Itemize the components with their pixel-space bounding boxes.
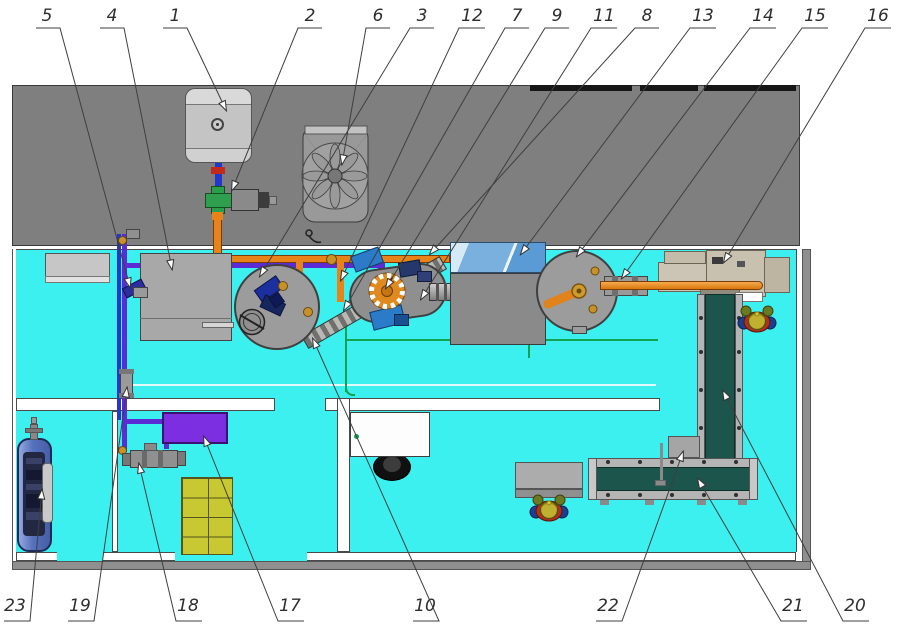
compressor-cap [122, 453, 131, 466]
callout-number-21: 21 [778, 596, 808, 616]
callout-number-17: 17 [275, 596, 305, 616]
press-machine-block [664, 251, 706, 264]
callout-number-23: 23 [0, 596, 30, 616]
compressor-band [158, 450, 163, 468]
vessel-slot [26, 494, 42, 508]
drum-black [373, 453, 411, 481]
callout-number-11: 11 [589, 6, 619, 26]
extruder-gearbox [417, 271, 432, 282]
horizontal-conveyor-cap [749, 458, 758, 500]
horizontal-conveyor-rail [588, 490, 758, 500]
upper-wall-strip [704, 85, 796, 91]
pump-orange-elbow [212, 212, 223, 220]
doorway [57, 552, 103, 561]
hopper-body [450, 273, 546, 345]
vessel-slot [26, 458, 42, 464]
conveyor-foot [600, 500, 609, 505]
valve-actuator [133, 287, 148, 298]
work-table-front [45, 276, 110, 283]
orange-pipe-branch [337, 258, 344, 302]
vessel-slot [26, 484, 42, 490]
vertical-conveyor-rail [735, 294, 743, 464]
extruder-nozzle-band [436, 283, 439, 301]
press-machine-block [764, 257, 790, 293]
conveyor-drive-foot [655, 480, 666, 486]
extruder-pump-motor [394, 314, 409, 326]
callout-number-22: 22 [593, 596, 623, 616]
hopper-top [450, 242, 546, 273]
conveyor-drive-box [668, 436, 700, 458]
right-wall-outer [802, 249, 811, 569]
conveyor-drive-rod [660, 443, 663, 482]
bottom-wall [16, 552, 796, 561]
callout-number-7: 7 [502, 6, 532, 26]
callout-number-4: 4 [97, 6, 127, 26]
pump-motor [231, 189, 259, 211]
pump-valve-body [205, 193, 232, 208]
floor-marking-line [130, 384, 656, 386]
callout-number-20: 20 [840, 596, 870, 616]
compressor-body [130, 450, 178, 468]
pump-motor-tail [269, 196, 277, 205]
callout-number-18: 18 [173, 596, 203, 616]
corridor-wall [16, 398, 275, 411]
storage-tank-seam [186, 104, 251, 105]
compressor-top [144, 443, 157, 451]
orange-discharge-pipe [600, 281, 763, 290]
partition-wall-vertical [337, 398, 350, 552]
pipe-flange [326, 254, 337, 265]
callout-number-12: 12 [457, 6, 487, 26]
conveyor-foot [697, 500, 706, 505]
vessel-valve-cross [25, 428, 43, 433]
vessel-panel [42, 463, 53, 523]
callout-number-14: 14 [748, 6, 778, 26]
tank-port-dot [216, 123, 219, 126]
callout-number-3: 3 [407, 6, 437, 26]
callout-number-2: 2 [295, 6, 325, 26]
partition-wall-vertical [112, 411, 118, 552]
callout-number-10: 10 [410, 596, 440, 616]
electrical-box [162, 412, 228, 444]
control-cabinet-divider [140, 318, 232, 319]
callout-number-15: 15 [800, 6, 830, 26]
compressor-block [177, 451, 186, 466]
horizontal-conveyor-belt [596, 467, 750, 491]
callout-number-5: 5 [32, 6, 62, 26]
inline-filter-cap [119, 369, 134, 374]
callout-number-1: 1 [160, 6, 190, 26]
mixing-drum [234, 264, 320, 350]
conveyor-foot [738, 500, 747, 505]
pipe-valve-top [126, 229, 140, 239]
press-machine-detail [712, 257, 723, 264]
callout-number-16: 16 [863, 6, 893, 26]
pump-red-fitting [211, 167, 225, 174]
callout-number-13: 13 [688, 6, 718, 26]
inline-filter-cap [119, 393, 134, 398]
control-cabinet-slot [202, 322, 234, 328]
extruder-nozzle-band [444, 283, 447, 301]
callout-number-19: 19 [65, 596, 95, 616]
upper-wall-strip [530, 85, 632, 91]
pallet-stack [181, 477, 233, 555]
vertical-conveyor-belt [705, 294, 735, 464]
bottom-outer-wall [12, 561, 811, 570]
plant-layout-drawing: 5 4 1 2 6 3 12 7 9 11 8 13 14 15 16 23 1… [0, 0, 900, 634]
vessel-slot [26, 512, 42, 520]
upper-wall-strip [640, 85, 698, 91]
callout-number-6: 6 [363, 6, 393, 26]
staging-table-front [515, 489, 583, 498]
callout-number-9: 9 [542, 6, 572, 26]
pump-motor-end [258, 192, 269, 208]
pedestal-box [350, 412, 430, 457]
vessel-valve-knob [31, 417, 37, 424]
compressor-band [142, 450, 147, 468]
rotary-drum-notch [572, 326, 587, 334]
orange-pipe-drop [213, 216, 222, 258]
conveyor-foot [645, 500, 654, 505]
corridor-wall [325, 398, 660, 411]
callout-number-8: 8 [632, 6, 662, 26]
horizontal-conveyor-cap [588, 458, 597, 500]
pedestal-green-dot [354, 434, 359, 439]
upper-hall-floor [12, 85, 800, 246]
staging-table [515, 462, 583, 489]
press-machine-detail [737, 261, 745, 267]
storage-tank-seam [186, 148, 251, 149]
vessel-slot [26, 470, 42, 480]
